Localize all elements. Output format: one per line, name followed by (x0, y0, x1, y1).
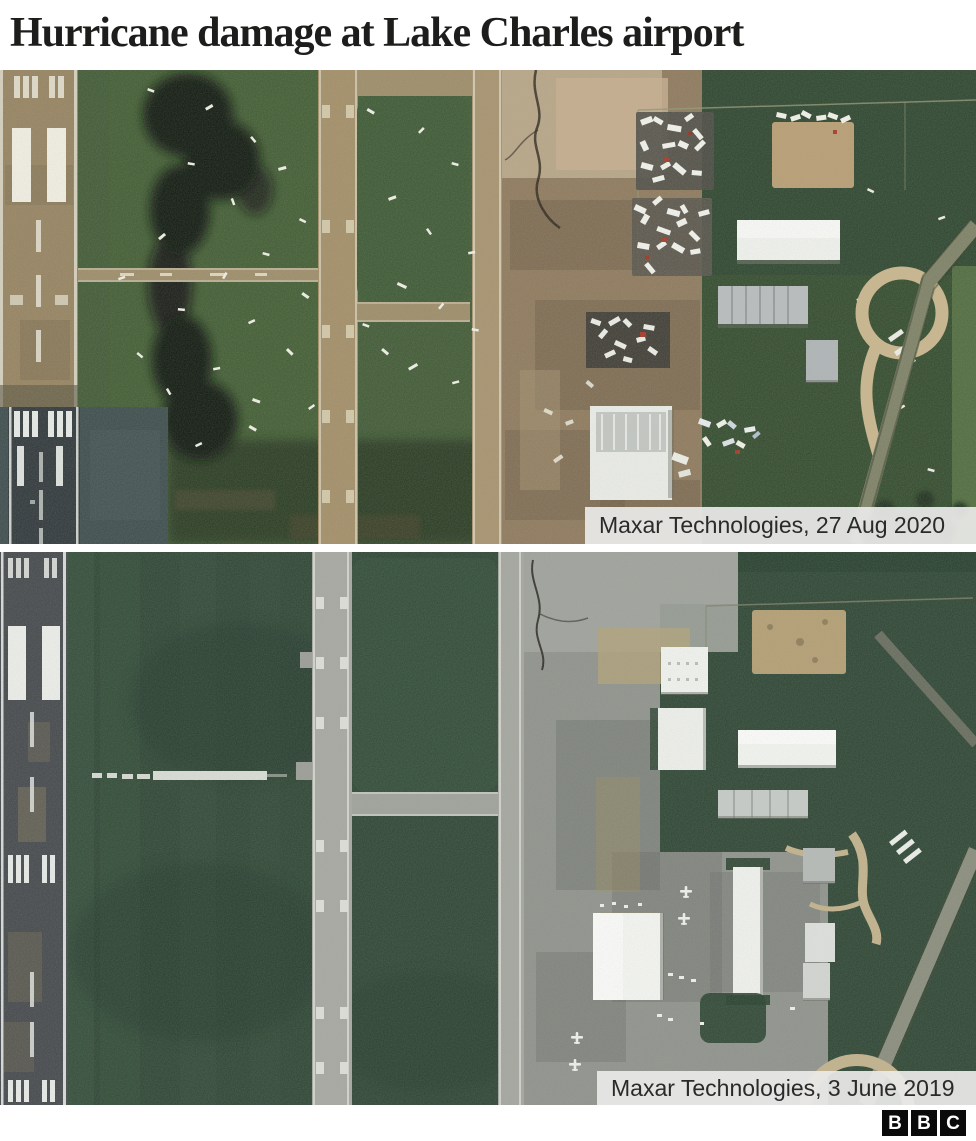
footer: B B C (0, 1105, 976, 1141)
news-graphic: Hurricane damage at Lake Charles airport (0, 0, 976, 1141)
satellite-photo-2019 (0, 552, 976, 1105)
satellite-image-before: Maxar Technologies, 3 June 2019 (0, 552, 976, 1105)
image-credit-after: Maxar Technologies, 27 Aug 2020 (585, 507, 976, 544)
satellite-photo-2020 (0, 70, 976, 544)
page-title: Hurricane damage at Lake Charles airport (10, 2, 966, 64)
bbc-logo-block-2: B (911, 1110, 937, 1136)
bbc-logo-block-1: B (882, 1110, 908, 1136)
satellite-image-after: Maxar Technologies, 27 Aug 2020 (0, 70, 976, 544)
bbc-logo: B B C (882, 1110, 966, 1136)
image-credit-before: Maxar Technologies, 3 June 2019 (597, 1071, 976, 1105)
bbc-logo-block-3: C (940, 1110, 966, 1136)
